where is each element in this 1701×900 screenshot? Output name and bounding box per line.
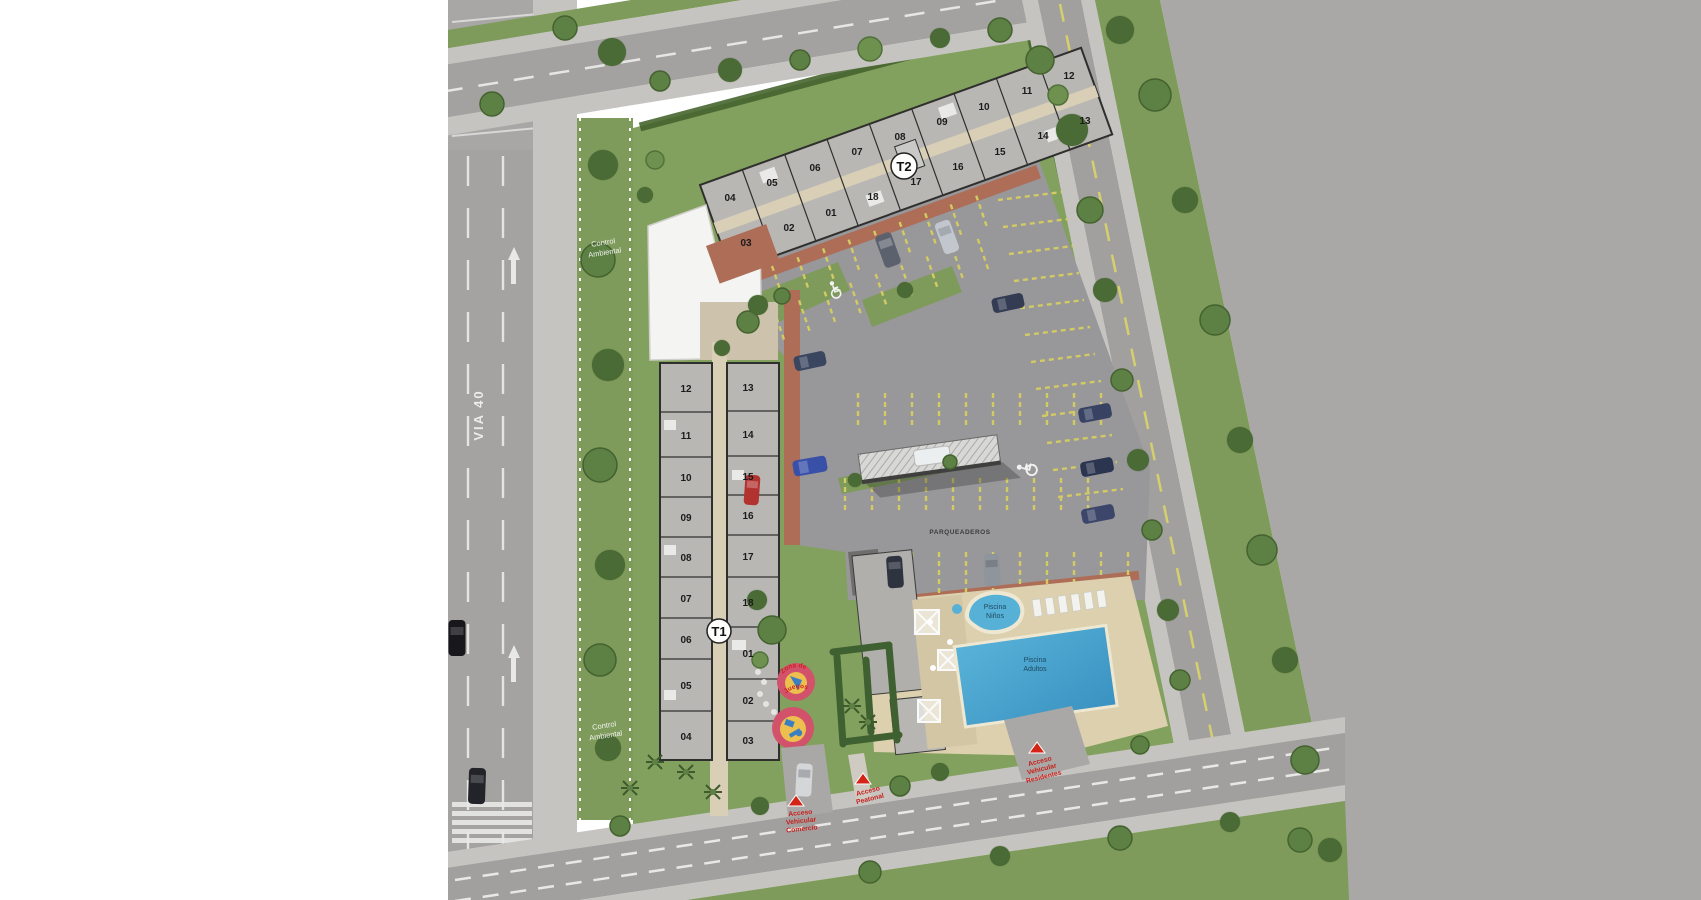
parqueaderos-label: PARQUEADEROS [929, 529, 990, 536]
unit-label: 18 [742, 598, 754, 609]
playground-circle-center [780, 716, 806, 742]
unit-label: 17 [742, 552, 754, 563]
unit-label: 09 [680, 513, 692, 524]
svg-text:Piscina: Piscina [1024, 657, 1047, 664]
unit-label: 15 [994, 147, 1006, 158]
unit-label: 17 [910, 177, 922, 188]
unit-label: 04 [724, 193, 736, 204]
unit-label: 13 [1079, 116, 1091, 127]
unit-label: 06 [680, 635, 692, 646]
svg-text:Niños: Niños [986, 613, 1004, 620]
unit-label: 12 [1063, 71, 1075, 82]
unit-label: 02 [783, 223, 795, 234]
unit-label: 11 [1022, 86, 1033, 97]
splash-pad [952, 604, 962, 614]
unit-label: 18 [867, 192, 879, 203]
unit-label: 04 [680, 732, 692, 743]
svg-text:Piscina: Piscina [984, 604, 1007, 611]
unit-label: 09 [936, 117, 948, 128]
left-margin [0, 0, 448, 900]
via-40-label: VIA 40 [471, 389, 486, 440]
svg-text:T1: T1 [711, 624, 726, 639]
unit-label: 14 [742, 430, 754, 441]
site-plan-svg: VIA 40 Control Ambiental Control Ambient… [0, 0, 1701, 900]
unit-label: 01 [742, 649, 754, 660]
unit-label: 15 [742, 472, 754, 483]
unit-label: 08 [894, 132, 906, 143]
unit-label: 12 [680, 384, 692, 395]
unit-label: 10 [680, 473, 692, 484]
unit-label: 10 [978, 102, 990, 113]
unit-label: 07 [680, 594, 692, 605]
unit-label: 07 [851, 147, 863, 158]
t1-badge: T1 [707, 619, 731, 643]
svg-text:T2: T2 [896, 159, 911, 174]
west-sidewalk [533, 0, 577, 856]
unit-label: 14 [1037, 131, 1049, 142]
unit-label: 03 [740, 238, 752, 249]
unit-label: 16 [952, 162, 964, 173]
unit-label: 03 [742, 736, 754, 747]
unit-label: 05 [766, 178, 778, 189]
unit-label: 11 [681, 431, 692, 442]
unit-label: 16 [742, 511, 754, 522]
tower-t1 [660, 342, 779, 816]
t2-badge: T2 [891, 153, 917, 179]
unit-label: 13 [742, 383, 754, 394]
svg-text:Adultos: Adultos [1023, 666, 1047, 673]
unit-label: 06 [809, 163, 821, 174]
site-plan-rendering: VIA 40 Control Ambiental Control Ambient… [0, 0, 1701, 900]
unit-label: 05 [680, 681, 692, 692]
unit-label: 08 [680, 553, 692, 564]
unit-label: 02 [742, 696, 754, 707]
unit-label: 01 [825, 208, 837, 219]
